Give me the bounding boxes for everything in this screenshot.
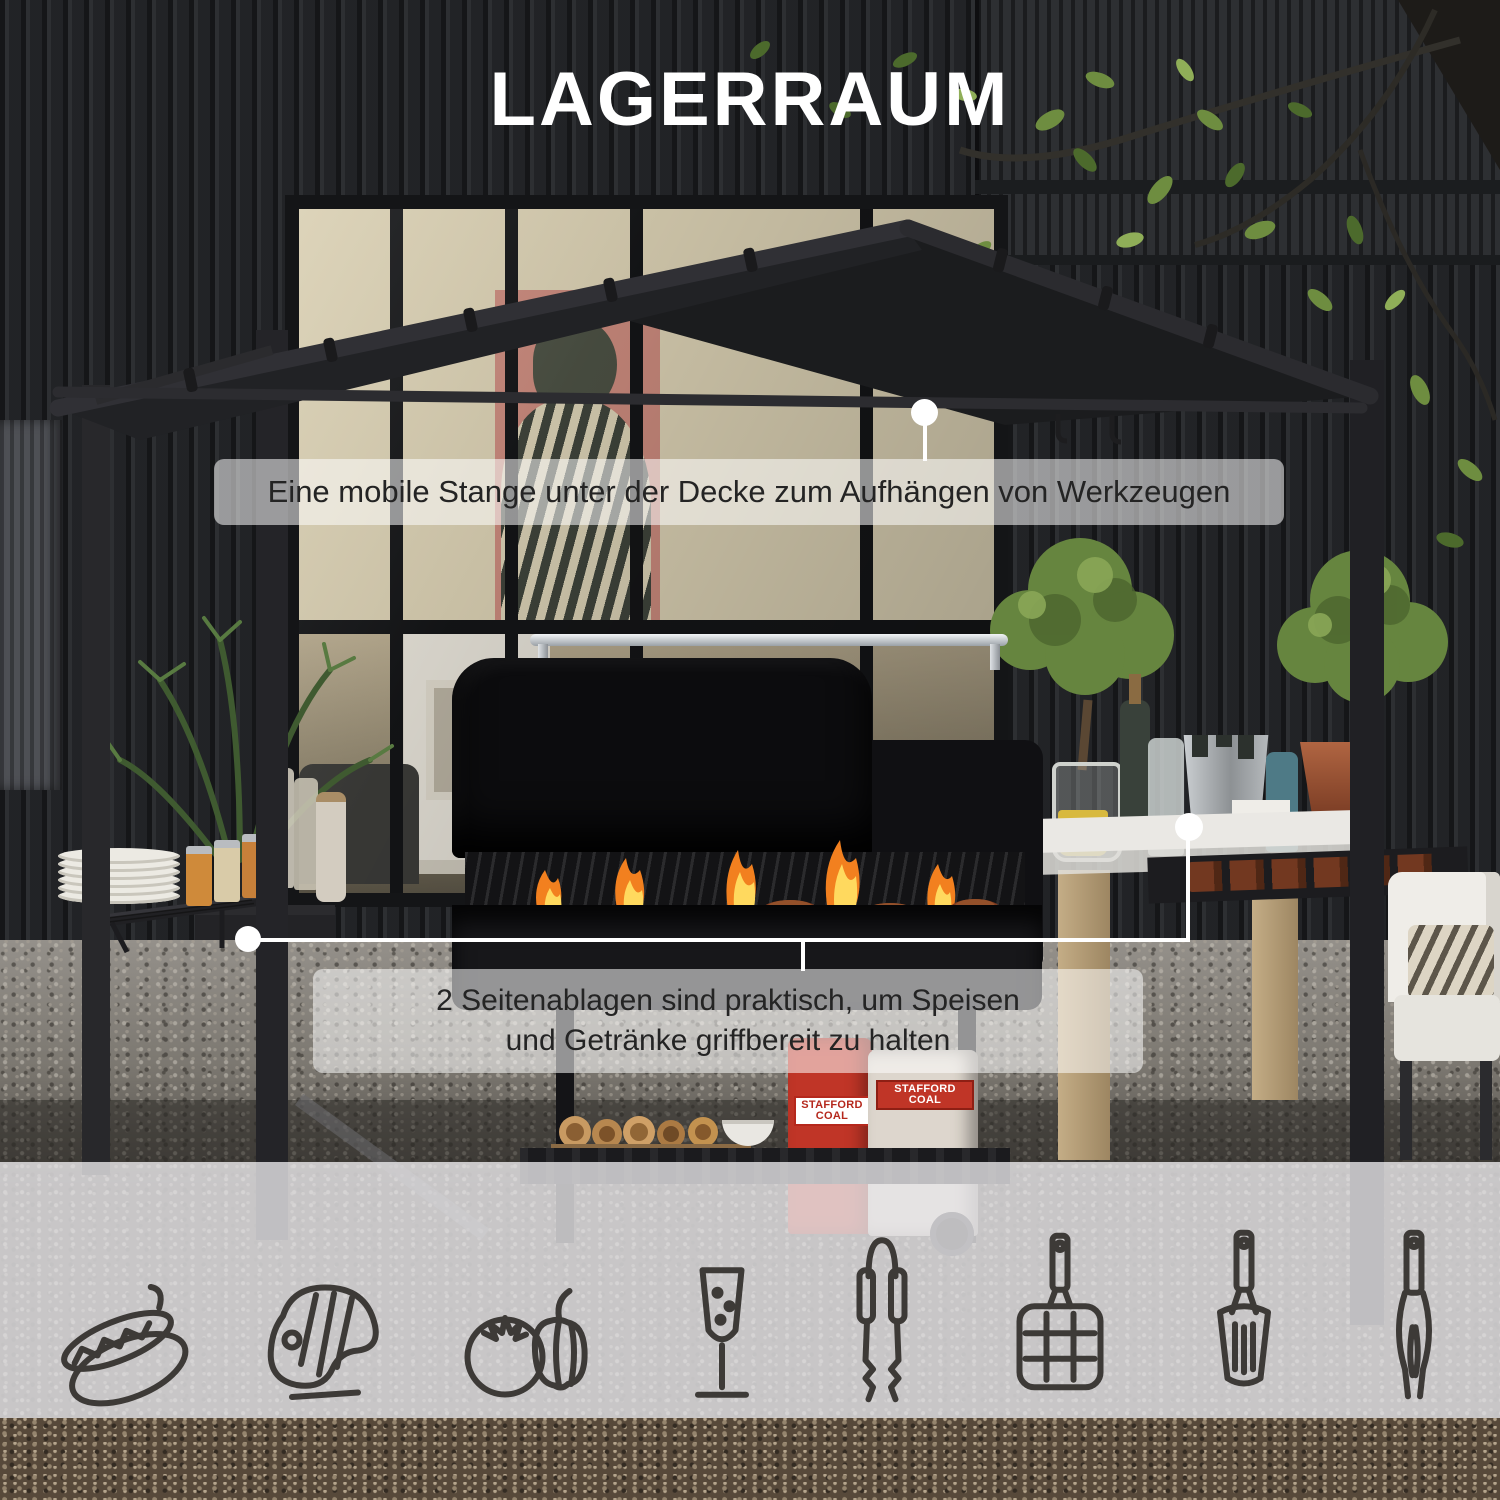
callout1-text: Eine mobile Stange unter der Decke zum A…: [268, 474, 1231, 510]
page-title: LAGERRAUM: [0, 56, 1500, 143]
grill-basket-icon: [985, 1228, 1135, 1416]
product-infographic: STAFFORD COAL STAFFORD COAL STAFFORD COA…: [0, 0, 1500, 1500]
steak-icon: [247, 1262, 397, 1412]
gravel-bottom-strip: [0, 1418, 1500, 1500]
coal-bag-label: STAFFORD COAL: [794, 1096, 870, 1126]
callout2-band: 2 Seitenablagen sind praktisch, um Speis…: [313, 969, 1143, 1073]
spatula-icon: [1169, 1228, 1319, 1416]
callout2-vline-right: [1186, 827, 1190, 940]
vegetables-icon: [451, 1258, 601, 1408]
callout2-dot-right: [1175, 813, 1203, 841]
hotdog-icon: [47, 1262, 197, 1412]
callout2-line2: und Getränke griffbereit zu halten: [506, 1021, 951, 1061]
callout2-connector: [801, 940, 805, 971]
callout2-hline: [248, 938, 1190, 942]
callout1-dot: [911, 399, 938, 426]
champagne-glass-icon: [647, 1252, 797, 1410]
tongs-icon: [807, 1228, 957, 1416]
grill-lid-handle: [530, 634, 1008, 646]
coal-bag-label: STAFFORD COAL: [876, 1080, 975, 1110]
callout1-band: Eine mobile Stange unter der Decke zum A…: [214, 459, 1284, 525]
callout2-dot-left: [235, 926, 261, 952]
bbq-fork-icon: [1339, 1228, 1489, 1416]
callout2-line1: 2 Seitenablagen sind praktisch, um Speis…: [436, 981, 1020, 1021]
